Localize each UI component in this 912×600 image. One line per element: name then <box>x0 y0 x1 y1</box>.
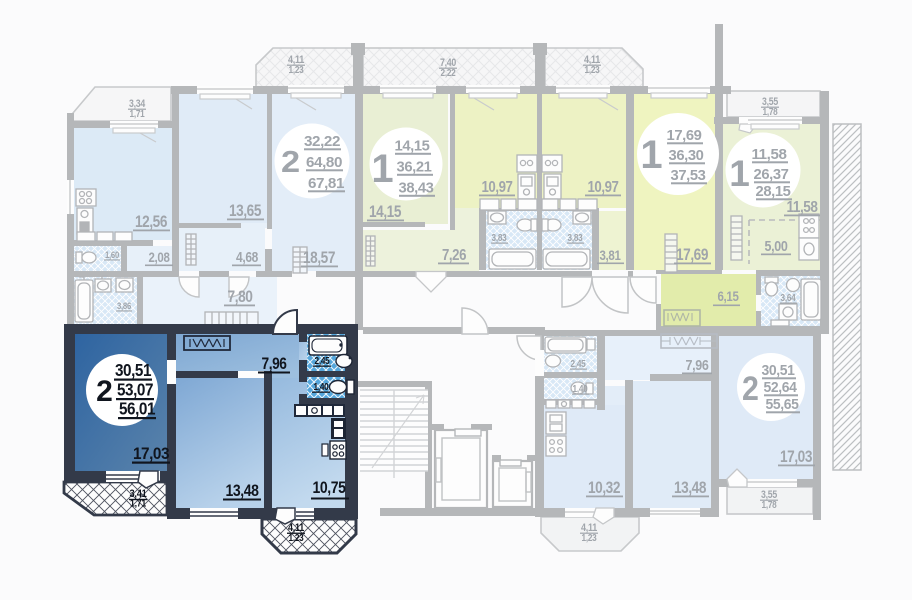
svg-text:38,43: 38,43 <box>399 180 434 197</box>
svg-text:1,23: 1,23 <box>289 533 305 544</box>
svg-text:1: 1 <box>371 147 393 191</box>
svg-text:2,08: 2,08 <box>149 249 170 265</box>
svg-text:2,45: 2,45 <box>315 356 331 367</box>
svg-text:3,83: 3,83 <box>492 233 508 244</box>
svg-text:11,58: 11,58 <box>752 146 787 163</box>
svg-text:2: 2 <box>96 375 112 408</box>
svg-text:2,45: 2,45 <box>571 359 587 370</box>
svg-text:52,64: 52,64 <box>764 380 797 396</box>
svg-text:28,15: 28,15 <box>756 183 791 200</box>
svg-text:3,83: 3,83 <box>568 233 584 244</box>
svg-text:7,96: 7,96 <box>686 357 709 374</box>
svg-text:18,57: 18,57 <box>303 249 335 267</box>
svg-text:10,75: 10,75 <box>313 478 346 497</box>
svg-text:10,97: 10,97 <box>482 179 514 196</box>
svg-text:26,37: 26,37 <box>754 166 789 183</box>
svg-text:2: 2 <box>281 144 299 179</box>
svg-text:1,78: 1,78 <box>763 107 779 118</box>
svg-text:3,64: 3,64 <box>781 293 797 304</box>
svg-text:4,68: 4,68 <box>236 250 258 266</box>
svg-text:17,69: 17,69 <box>667 127 702 144</box>
svg-text:10,32: 10,32 <box>588 479 620 497</box>
svg-text:13,65: 13,65 <box>229 202 261 220</box>
svg-text:17,03: 17,03 <box>133 444 169 463</box>
svg-text:37,53: 37,53 <box>671 167 706 184</box>
svg-text:1,71: 1,71 <box>130 499 147 510</box>
svg-text:1,71: 1,71 <box>130 109 146 120</box>
svg-text:3,81: 3,81 <box>600 247 621 263</box>
svg-text:7,80: 7,80 <box>228 288 253 306</box>
svg-text:6,15: 6,15 <box>718 288 739 304</box>
svg-text:17,69: 17,69 <box>676 246 708 264</box>
svg-text:12,56: 12,56 <box>135 213 167 231</box>
svg-text:1: 1 <box>640 133 662 177</box>
svg-text:67,81: 67,81 <box>308 175 345 192</box>
svg-text:1,60: 1,60 <box>105 250 119 261</box>
svg-text:10,97: 10,97 <box>588 179 620 196</box>
svg-text:2,22: 2,22 <box>441 68 457 79</box>
svg-text:11,58: 11,58 <box>787 199 819 216</box>
svg-text:1,23: 1,23 <box>582 533 598 544</box>
svg-text:36,30: 36,30 <box>669 147 704 164</box>
svg-text:14,15: 14,15 <box>369 203 401 221</box>
svg-text:3,86: 3,86 <box>117 301 131 312</box>
svg-text:1,40: 1,40 <box>314 382 330 393</box>
svg-text:1,40: 1,40 <box>573 384 589 395</box>
svg-text:1,78: 1,78 <box>762 500 778 511</box>
svg-text:13,48: 13,48 <box>674 479 706 497</box>
svg-text:7,26: 7,26 <box>442 247 467 264</box>
svg-text:1,23: 1,23 <box>289 65 305 76</box>
svg-text:1: 1 <box>729 153 749 194</box>
svg-text:64,80: 64,80 <box>306 154 342 171</box>
svg-text:53,07: 53,07 <box>117 380 153 400</box>
svg-text:7,96: 7,96 <box>262 355 287 373</box>
svg-text:14,15: 14,15 <box>395 138 430 155</box>
svg-text:32,22: 32,22 <box>304 133 340 150</box>
svg-text:56,01: 56,01 <box>119 399 156 419</box>
svg-text:55,65: 55,65 <box>766 397 799 413</box>
svg-text:17,03: 17,03 <box>780 448 812 466</box>
svg-text:36,21: 36,21 <box>397 159 432 176</box>
svg-text:5,00: 5,00 <box>765 238 788 255</box>
svg-text:2: 2 <box>742 370 758 408</box>
svg-text:13,48: 13,48 <box>226 481 259 500</box>
svg-text:30,51: 30,51 <box>762 363 795 379</box>
svg-text:30,51: 30,51 <box>115 360 152 380</box>
svg-text:1,23: 1,23 <box>585 65 601 76</box>
